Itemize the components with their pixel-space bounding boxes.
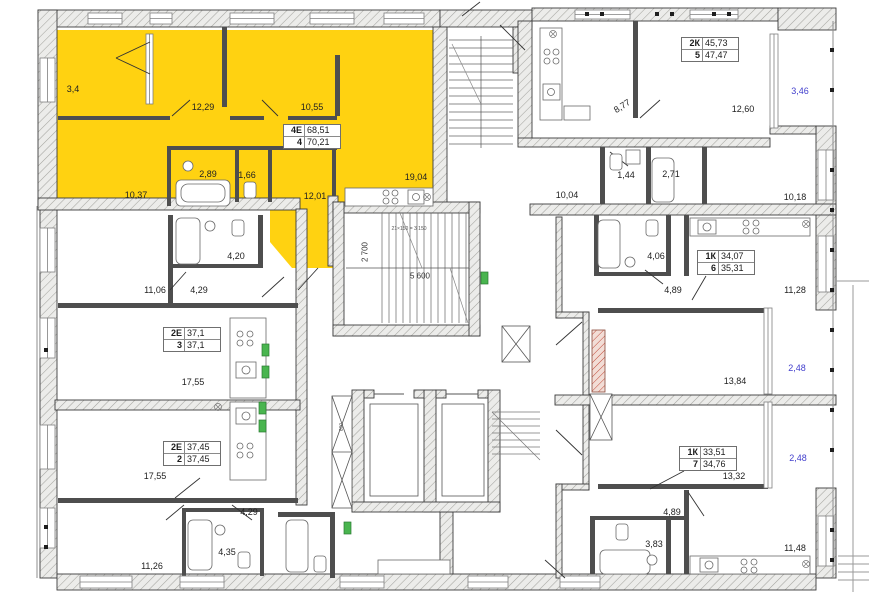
room-area-label: 2,71: [662, 169, 680, 179]
apartment-area-living: 33,51: [700, 447, 736, 458]
apartment-area-total: 37,45: [184, 453, 220, 465]
dimension-label: 5 600: [410, 272, 430, 281]
elevator-cab: [370, 404, 418, 496]
apartment-info-box: 2Е 37,45 2 37,45: [163, 441, 221, 466]
sink-icon: [625, 257, 635, 267]
room-area-label: 10,37: [125, 190, 148, 200]
sink-icon: [647, 555, 657, 565]
room-area-label: 10,18: [784, 192, 807, 202]
apartment-type: 2Е: [164, 442, 184, 453]
apartment-type: 4Е: [284, 125, 304, 136]
bathtub-icon: [652, 158, 674, 202]
apartment-area-living: 68,51: [304, 125, 340, 136]
apartment-area-living: 37,45: [184, 442, 220, 453]
apartment-area-living: 37,1: [184, 328, 220, 339]
sink-icon: [205, 221, 215, 231]
room-area-label: 4,89: [663, 507, 681, 517]
room-area-label: 1,44: [617, 170, 635, 180]
apartment-type: 2Е: [164, 328, 184, 339]
apartment-info-box: 2Е 37,1 3 37,1: [163, 327, 221, 352]
kitchen-counter: [540, 28, 562, 120]
apartment-number: 6: [698, 262, 718, 274]
room-area-label: 11,48: [784, 543, 806, 553]
apartment-number: 3: [164, 339, 184, 351]
room-area-label: 1,66: [238, 170, 256, 180]
apartment-number: 4: [284, 136, 304, 148]
meter-box-icon: [344, 522, 351, 534]
meter-box-icon: [259, 402, 266, 414]
toilet-icon: [610, 154, 622, 170]
toilet-icon: [616, 524, 628, 540]
room-area-label: 4,29: [240, 507, 258, 517]
room-area-label: 4,35: [218, 547, 236, 557]
toilet-icon: [646, 220, 658, 236]
meter-box-icon: [259, 420, 266, 432]
washer-icon: [626, 150, 640, 164]
bathtub-icon: [176, 218, 200, 264]
room-area-label: 4,29: [190, 285, 208, 295]
meter-box-icon: [262, 344, 269, 356]
floor-plan: 3,4 12,29 10,55 2,89 1,66 10,37 12,01 19…: [0, 0, 869, 592]
apartment-area-total: 47,47: [702, 49, 738, 61]
toilet-icon: [314, 556, 326, 572]
room-area-label: 10,55: [301, 102, 324, 112]
room-area-label: 11,26: [141, 561, 163, 571]
bathtub-icon: [286, 520, 308, 572]
apartment-number: 7: [680, 458, 700, 470]
room-area-label: 4,06: [647, 251, 665, 261]
room-area-label: 3,83: [645, 539, 663, 549]
apartment-area-total: 37,1: [184, 339, 220, 351]
cabinet-icon: [564, 106, 590, 120]
toilet-icon: [232, 220, 244, 236]
bathtub-icon: [598, 220, 620, 268]
room-area-label: 4,20: [227, 251, 245, 261]
site-lines: [836, 281, 869, 592]
toilet-icon: [238, 552, 250, 568]
vent-shaft-red: [592, 330, 605, 392]
room-area-label: 19,04: [405, 172, 428, 182]
bathtub-icon: [188, 520, 212, 570]
plan-canvas: [0, 0, 869, 592]
loggia-area-label: 2,48: [787, 453, 809, 463]
meter-box-icon: [481, 272, 488, 284]
room-area-label: 4,89: [664, 285, 682, 295]
kitchen-counter: [378, 560, 450, 574]
room-area-label: 12,29: [192, 102, 215, 112]
room-area-label: 13,84: [724, 376, 747, 386]
apartment-info-box: 4Е 68,51 4 70,21: [283, 124, 341, 149]
apartment-info-box: 1К 33,51 7 34,76: [679, 446, 737, 471]
meter-box-icon: [262, 366, 269, 378]
apartment-info-box: 2К 45,73 5 47,47: [681, 37, 739, 62]
apartment-type: 1К: [680, 447, 700, 458]
dimension-label: 600: [339, 423, 345, 431]
loggia-area-label: 2,48: [786, 363, 808, 373]
apartment-info-box: 1К 34,07 6 35,31: [697, 250, 755, 275]
room-area-label: 10,04: [556, 190, 579, 200]
sink-icon: [215, 525, 225, 535]
apartment-type: 2К: [682, 38, 702, 49]
apartment-area-total: 34,76: [700, 458, 736, 470]
kitchen-counter: [230, 318, 266, 398]
apartment-type: 1К: [698, 251, 718, 262]
room-area-label: 13,32: [723, 471, 746, 481]
room-area-label: 11,06: [144, 285, 166, 295]
dimension-label: 2 700: [361, 242, 370, 262]
room-area-label: 2,89: [199, 169, 217, 179]
elevator-cab: [442, 404, 484, 496]
room-area-label: 17,55: [182, 377, 205, 387]
room-area-label: 11,28: [784, 285, 806, 295]
apartment-area-living: 34,07: [718, 251, 754, 262]
room-area-label: 17,55: [144, 471, 167, 481]
apartment-area-total: 70,21: [304, 136, 340, 148]
sink-icon: [183, 161, 193, 171]
apartment-number: 5: [682, 49, 702, 61]
room-area-label: 12,60: [732, 104, 755, 114]
apartment-area-living: 45,73: [702, 38, 738, 49]
loggia-area-label: 3,46: [789, 86, 811, 96]
dimension-label: 21×150 = 3 150: [391, 226, 426, 232]
apartment-area-total: 35,31: [718, 262, 754, 274]
apartment-number: 2: [164, 453, 184, 465]
room-area-label: 3,4: [67, 84, 80, 94]
toilet-icon: [244, 182, 256, 198]
room-area-label: 12,01: [304, 191, 327, 201]
bathtub-icon: [600, 550, 650, 574]
